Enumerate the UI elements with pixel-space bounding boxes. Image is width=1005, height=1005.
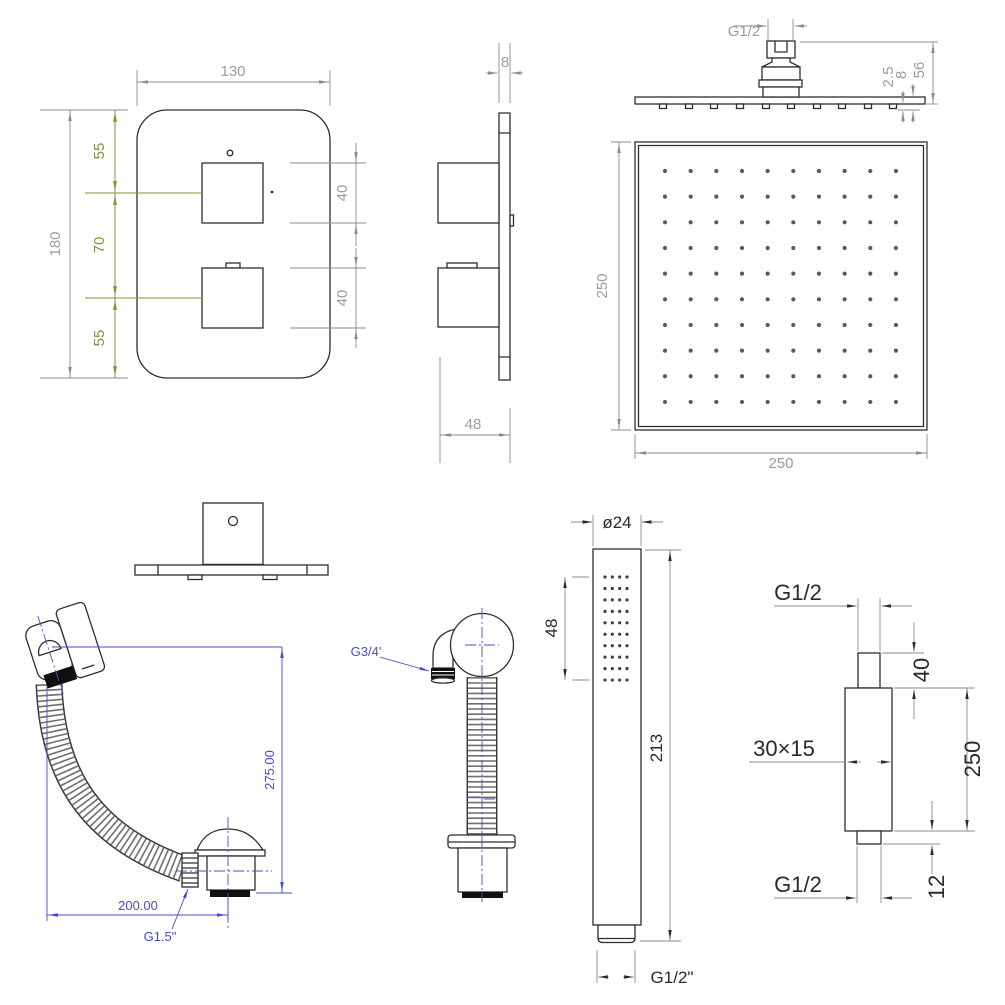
nozzle-dot (663, 323, 667, 327)
nozzle-dot (894, 246, 898, 250)
nozzle-dot (766, 272, 770, 276)
nozzle-dot (714, 246, 718, 250)
nozzle-dot (894, 374, 898, 378)
waste-cap (197, 829, 263, 850)
valve-side-knob-lower (438, 268, 499, 327)
nozzle-dot (663, 272, 667, 276)
spout-plate (135, 565, 328, 575)
nozzle-dot (618, 633, 621, 636)
nozzle-dot (714, 272, 718, 276)
nozzle-dot (611, 587, 614, 590)
nozzle-dot (894, 272, 898, 276)
overflow-assembly (21, 601, 109, 699)
nozzle-dot (625, 644, 628, 647)
waste-thread-adapter (182, 853, 198, 887)
nozzle-dot (843, 195, 847, 199)
nozzle-dot (740, 349, 744, 353)
nozzle-dot (843, 220, 847, 224)
nozzle-dot (625, 610, 628, 613)
nozzle-dot (611, 656, 614, 659)
dim-arm-neck: 40 (909, 658, 934, 682)
nozzle-dot (663, 374, 667, 378)
nozzle-dot (714, 400, 718, 404)
nozzle-dot (611, 575, 614, 578)
dim-valve-seg-top: 55 (91, 143, 108, 160)
nozzle-dot (625, 587, 628, 590)
nozzle-dot (817, 374, 821, 378)
nozzle-dot (791, 400, 795, 404)
nozzle-dot (894, 195, 898, 199)
nozzle-dot (791, 246, 795, 250)
nozzle-dot (618, 598, 621, 601)
nozzle-dot (618, 575, 621, 578)
nozzle-dot (603, 621, 606, 624)
nozzle-dot (740, 169, 744, 173)
dim-hand-thread: G1/2" (651, 968, 694, 987)
dim-valve-seg-bot: 55 (91, 330, 108, 347)
nozzle-dot (611, 644, 614, 647)
nozzle-dot (689, 297, 693, 301)
dim-hand-length: 213 (647, 734, 666, 762)
nozzle-dot (791, 195, 795, 199)
valve-knob-lower-tab (226, 263, 240, 268)
dim-knob-lower: 40 (334, 290, 351, 307)
valve-pin-hole (227, 150, 233, 156)
nozzle-dot (894, 169, 898, 173)
nozzle-dot (603, 644, 606, 647)
nozzle-dot (894, 349, 898, 353)
hand-shower-view: ø24 48 213 G1/2" (542, 513, 693, 987)
dim-plate-thickness: 8 (501, 54, 509, 71)
dim-valve-seg-mid: 70 (91, 237, 108, 254)
spout-body (203, 503, 263, 565)
nozzle-dot (817, 297, 821, 301)
nozzle-dot (740, 195, 744, 199)
outlet-base (448, 835, 515, 898)
nozzle-dot (791, 323, 795, 327)
nozzle-dot (689, 195, 693, 199)
hand-shower-tip (598, 925, 635, 943)
nozzle-dot (611, 633, 614, 636)
nozzle-dot (689, 246, 693, 250)
dim-valve-height: 180 (47, 231, 64, 256)
nozzle-dot (618, 587, 621, 590)
nozzle-dot (894, 297, 898, 301)
nozzle-dot (663, 297, 667, 301)
nozzle-dot (740, 297, 744, 301)
nozzle-dot (740, 374, 744, 378)
nozzle-dot (714, 220, 718, 224)
nozzle-dot (817, 400, 821, 404)
outlet-seal (462, 892, 503, 898)
technical-drawing-sheet: 130 180 55 70 55 40 40 (0, 0, 1005, 1005)
nozzle-dot (663, 349, 667, 353)
nozzle-dot (603, 575, 606, 578)
nozzle-dot (766, 374, 770, 378)
nozzle-dot (791, 169, 795, 173)
nozzle-dot (740, 323, 744, 327)
head-nozzles-side (660, 104, 897, 109)
spout-tab-right (263, 575, 277, 580)
nozzle-dot (689, 272, 693, 276)
dim-arm-thread-top: G1/2 (774, 580, 822, 605)
nozzle-dot (625, 656, 628, 659)
nozzle-dot (618, 656, 621, 659)
nozzle-dot (894, 400, 898, 404)
nozzle-dot (766, 297, 770, 301)
head-plate (635, 97, 925, 104)
nozzle-dot (868, 297, 872, 301)
nozzle-dot (663, 169, 667, 173)
wall-arm-view: G1/2 40 250 30×15 G1/2 12 (749, 580, 985, 903)
nozzle-dot (868, 374, 872, 378)
dim-head-plan-height: 250 (594, 273, 611, 298)
nozzle-dot (766, 400, 770, 404)
nozzle-dot (740, 246, 744, 250)
nozzle-dot (689, 220, 693, 224)
nozzle-dot (611, 598, 614, 601)
dim-hand-spray: 48 (542, 619, 561, 638)
nozzle-dot (843, 169, 847, 173)
nozzle-dot (843, 374, 847, 378)
valve-side-tab (510, 215, 514, 226)
dim-valve-depth: 48 (465, 416, 482, 433)
nozzle-dot (868, 272, 872, 276)
nozzle-dot (868, 246, 872, 250)
valve-side-view: 8 48 (438, 43, 523, 463)
dim-outlet-thread: G3/4' (351, 644, 382, 659)
nozzle-dot (603, 678, 606, 681)
nozzle-dot (714, 297, 718, 301)
spout-tab-left (188, 575, 202, 580)
nozzle-dot (603, 587, 606, 590)
dim-head-height: 56 (911, 62, 928, 79)
outlet-elbow-view: G3/4' (351, 608, 515, 902)
nozzle-dot (817, 169, 821, 173)
nozzle-dot (766, 349, 770, 353)
nozzle-dot (603, 610, 606, 613)
head-connector (759, 41, 802, 97)
nozzle-dot (618, 610, 621, 613)
nozzle-dot (894, 323, 898, 327)
dim-waste-height: 275.00 (262, 750, 277, 790)
nozzle-dot (625, 575, 628, 578)
nozzle-dot (843, 400, 847, 404)
dim-knob-upper: 40 (334, 185, 351, 202)
dim-arm-section: 30×15 (753, 736, 815, 761)
nozzle-dot (618, 644, 621, 647)
nozzle-dot (894, 220, 898, 224)
nozzle-dot (868, 323, 872, 327)
nozzle-dot (603, 598, 606, 601)
dim-arm-tail: 12 (924, 875, 949, 899)
nozzle-dot (868, 349, 872, 353)
valve-side-plate (499, 113, 510, 380)
nozzle-dot (603, 656, 606, 659)
nozzle-dot (714, 349, 718, 353)
valve-side-knob-lower-tab (447, 263, 477, 268)
nozzle-dot (714, 169, 718, 173)
nozzle-dot (611, 610, 614, 613)
nozzle-dot (868, 400, 872, 404)
nozzle-dot (740, 400, 744, 404)
arm-body (845, 688, 892, 831)
nozzle-dot (603, 633, 606, 636)
nozzle-dot (714, 374, 718, 378)
valve-knob-upper (202, 163, 263, 223)
nozzle-dot (689, 400, 693, 404)
nozzle-dot (618, 667, 621, 670)
dim-valve-width: 130 (220, 63, 245, 80)
nozzle-dot (663, 195, 667, 199)
dim-head-thread: G1/2 (728, 23, 761, 40)
nozzle-dot (817, 195, 821, 199)
valve-knob-lower (202, 268, 263, 328)
nozzle-dot (817, 246, 821, 250)
nozzle-dot (843, 272, 847, 276)
spout-plan-view (135, 503, 328, 580)
nozzle-dot (791, 272, 795, 276)
hand-shower-body (593, 549, 641, 925)
dim-hand-diameter: ø24 (602, 513, 631, 532)
nozzle-dot (611, 678, 614, 681)
bath-waste-view: 275.00 200.00 G1.5" (21, 601, 292, 944)
arm-bottom-stub (857, 831, 881, 844)
nozzle-dot (766, 195, 770, 199)
nozzle-dot (689, 374, 693, 378)
nozzle-dot (618, 678, 621, 681)
nozzle-dot (817, 323, 821, 327)
dim-head-plan-width: 250 (768, 455, 793, 472)
head-side-view: G1/2 56 8 2.5 (635, 19, 938, 123)
dim-waste-thread: G1.5" (144, 929, 177, 944)
nozzle-dot (766, 246, 770, 250)
nozzle-dot (868, 195, 872, 199)
nozzle-dot (740, 272, 744, 276)
nozzle-dot (817, 220, 821, 224)
nozzle-dot (611, 667, 614, 670)
nozzle-dot (817, 272, 821, 276)
nozzle-dot (791, 374, 795, 378)
nozzle-dot (843, 349, 847, 353)
nozzle-dot (766, 220, 770, 224)
nozzle-dot (625, 633, 628, 636)
nozzle-dot (663, 220, 667, 224)
nozzle-dot (791, 297, 795, 301)
nozzle-dot (611, 621, 614, 624)
head-plan-outline (635, 142, 927, 430)
nozzle-dot (766, 169, 770, 173)
nozzle-dot (625, 621, 628, 624)
drawing-canvas: 130 180 55 70 55 40 40 (0, 0, 1005, 1005)
dim-waste-reach: 200.00 (118, 898, 158, 913)
nozzle-dot (791, 220, 795, 224)
nozzle-dot (868, 220, 872, 224)
nozzle-dot (689, 349, 693, 353)
nozzle-dot (740, 220, 744, 224)
valve-side-knob-upper (438, 163, 499, 223)
nozzle-dot (817, 349, 821, 353)
waste-drain (176, 817, 272, 928)
nozzle-dot (663, 400, 667, 404)
nozzle-dot (625, 598, 628, 601)
nozzle-dot (868, 169, 872, 173)
nozzle-dot (791, 349, 795, 353)
dim-arm-body: 250 (960, 741, 985, 778)
nozzle-dot (843, 297, 847, 301)
nozzle-dot (843, 246, 847, 250)
nozzle-dot (618, 621, 621, 624)
head-plan-view: 250 250 (594, 142, 927, 472)
nozzle-dot (663, 246, 667, 250)
nozzle-dot (714, 323, 718, 327)
dim-arm-thread-bottom: G1/2 (774, 872, 822, 897)
nozzle-dot (766, 323, 770, 327)
nozzle-dot (625, 678, 628, 681)
nozzle-dot (843, 323, 847, 327)
nozzle-dot (689, 323, 693, 327)
dim-head-protrusion: 2.5 (880, 67, 897, 88)
arm-top-stub (858, 653, 880, 688)
waste-seal (210, 890, 250, 897)
nozzle-dot (603, 667, 606, 670)
nozzle-dot (625, 667, 628, 670)
valve-plate-outline (137, 110, 330, 378)
spout-hole (229, 517, 238, 526)
nozzle-dot (714, 195, 718, 199)
nozzle-dot (689, 169, 693, 173)
valve-front-view: 130 180 55 70 55 40 40 (40, 63, 366, 378)
valve-dot (271, 191, 274, 194)
